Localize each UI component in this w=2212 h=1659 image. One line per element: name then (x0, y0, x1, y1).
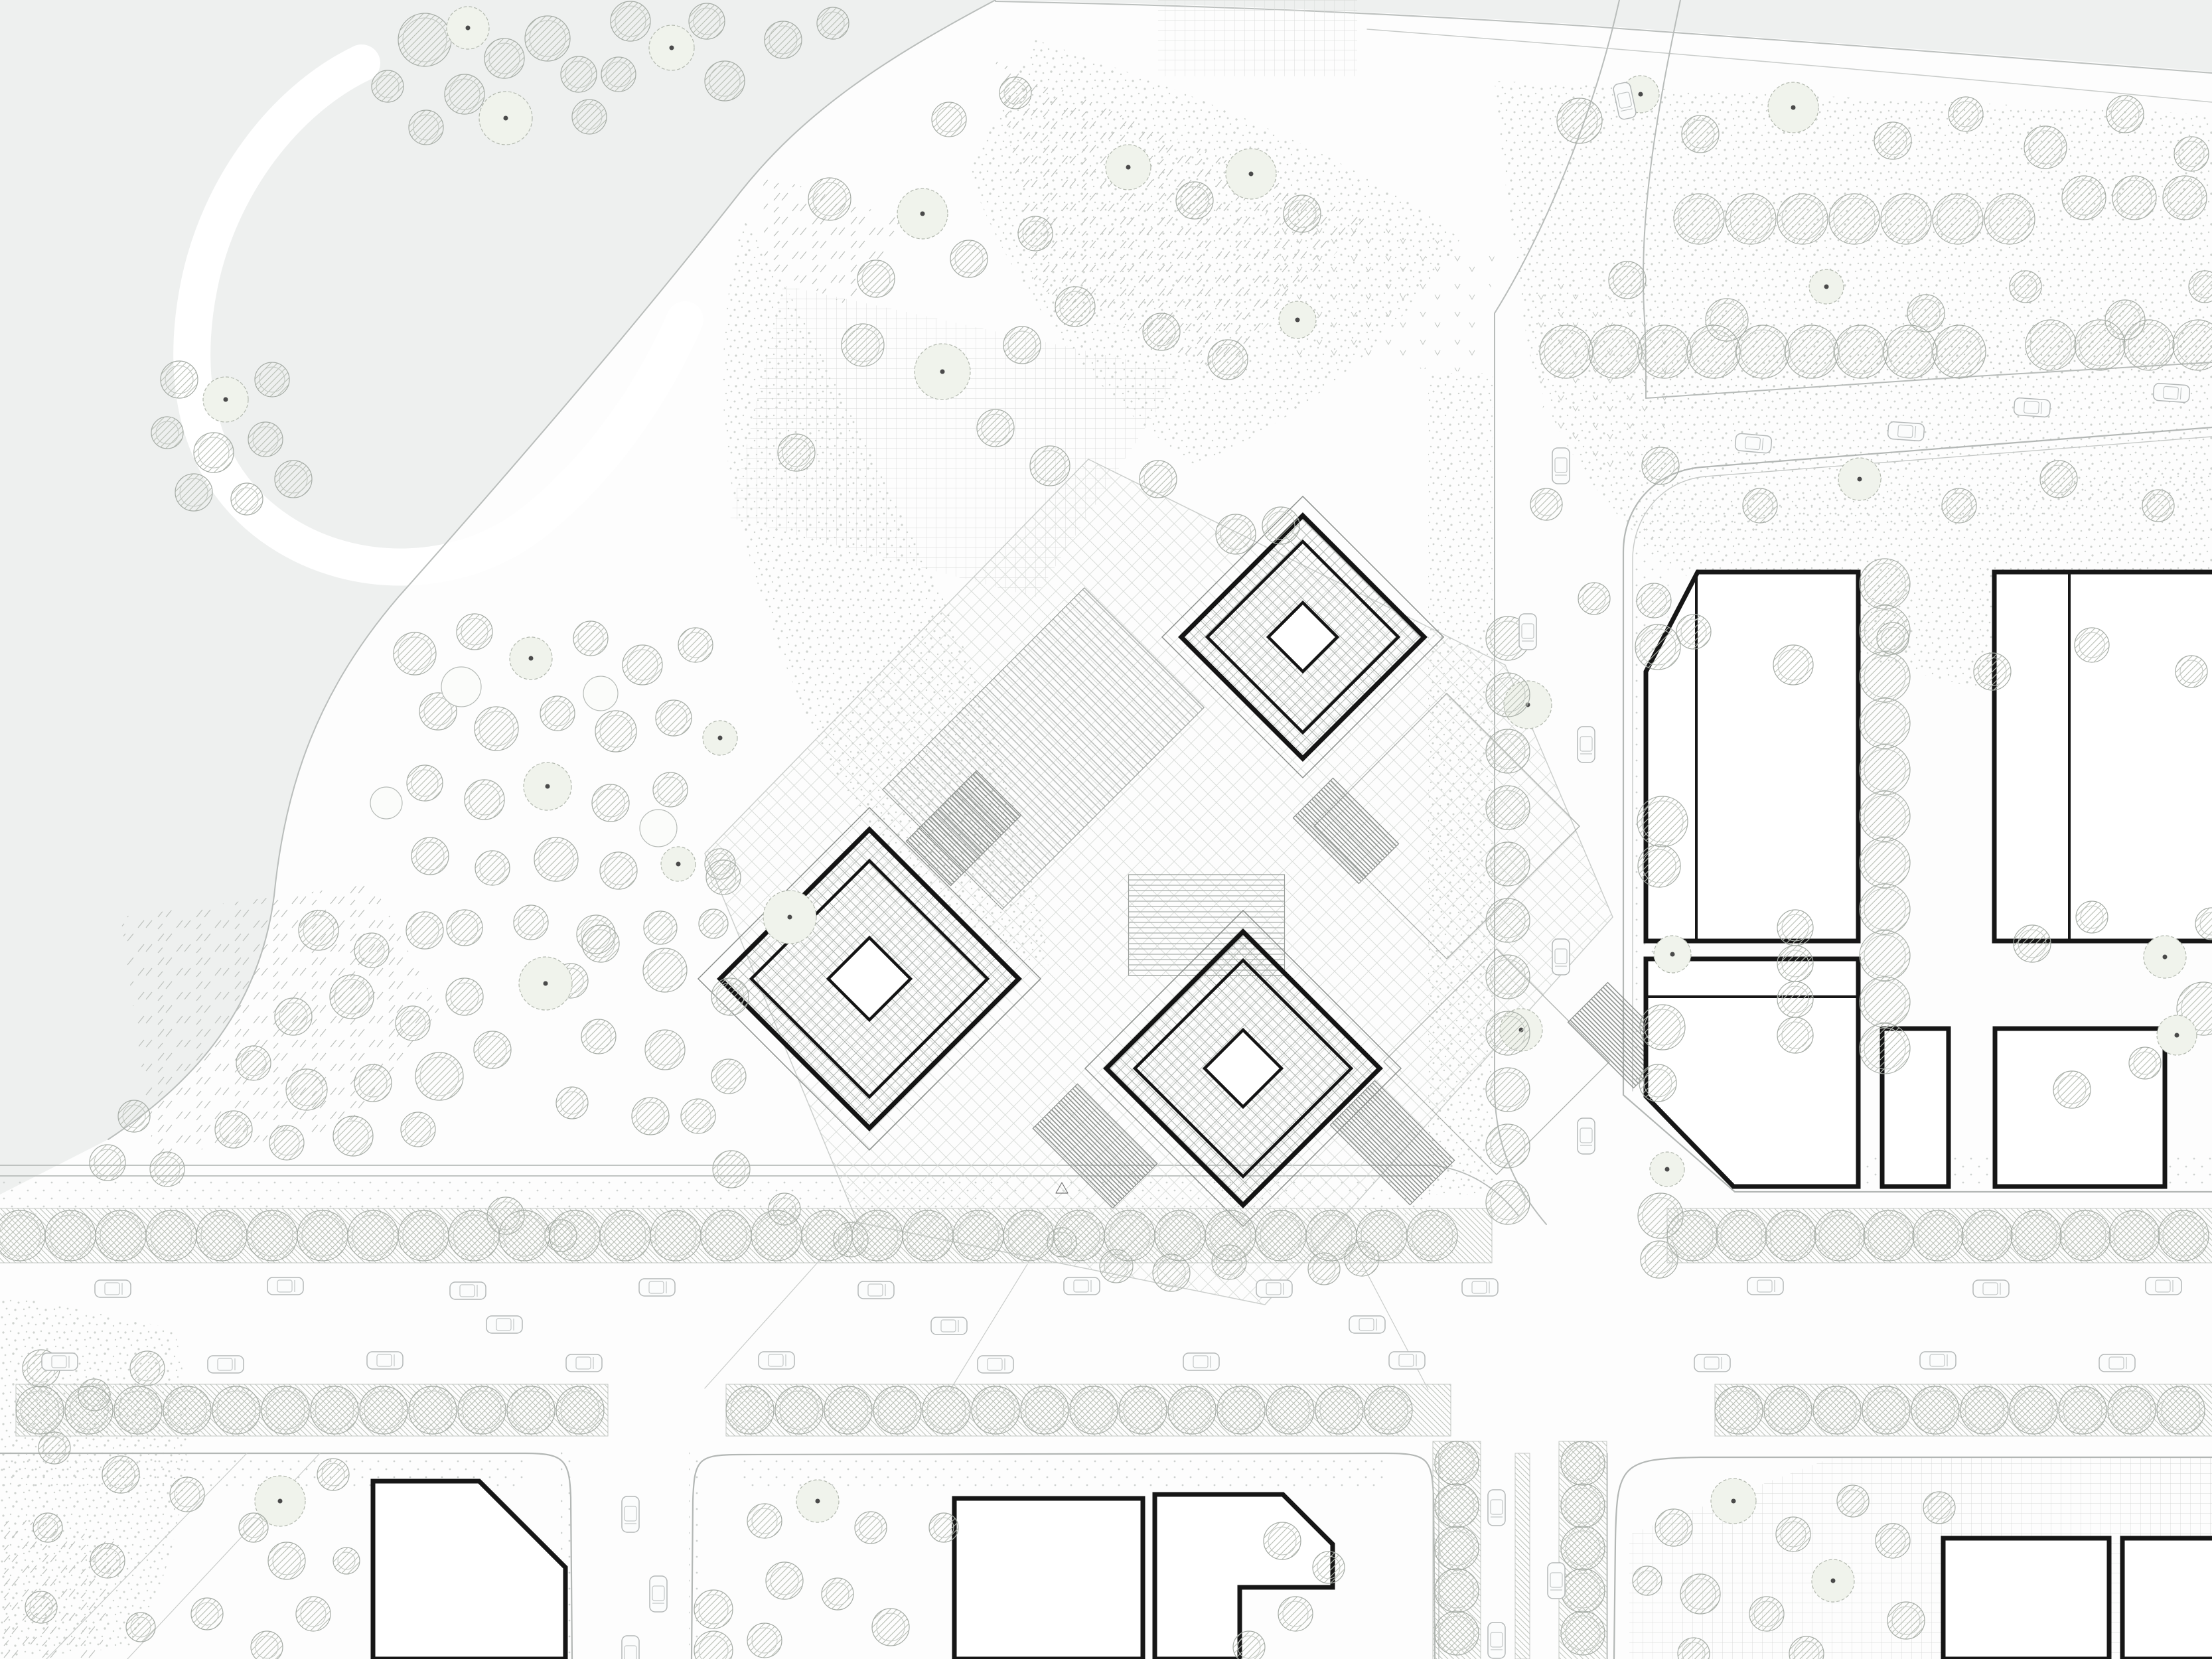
tree (175, 474, 212, 511)
tree (703, 721, 737, 755)
tree (775, 1386, 823, 1434)
tree (2108, 1386, 2156, 1434)
car (1973, 1280, 2009, 1297)
tree (465, 780, 504, 820)
tree (778, 434, 815, 471)
tree (705, 61, 745, 101)
tree (1435, 1441, 1479, 1485)
tree (999, 77, 1031, 109)
tree (1486, 1068, 1530, 1112)
tree (1589, 325, 1642, 378)
tree (449, 1210, 499, 1261)
tree (1860, 837, 1910, 888)
tree (2060, 1210, 2110, 1261)
tree (161, 361, 198, 398)
tree (2157, 1015, 2197, 1055)
tree (1104, 1210, 1155, 1261)
tree (822, 1578, 853, 1610)
tree (1785, 325, 1838, 378)
tree (348, 1210, 398, 1261)
tree (1726, 194, 1776, 244)
tree (1860, 930, 1910, 981)
tree (656, 700, 692, 736)
tree (1876, 1524, 1910, 1558)
tree (2059, 1386, 2106, 1434)
tree (857, 260, 895, 297)
tree (194, 433, 234, 472)
tree (1486, 842, 1530, 886)
tree (706, 860, 741, 895)
tree (611, 1, 650, 41)
street-tree-row (16, 1384, 608, 1436)
car (1548, 1563, 1565, 1599)
tree (595, 711, 636, 752)
tree (1736, 325, 1789, 378)
car (2099, 1354, 2135, 1372)
street-tree-row (2062, 176, 2207, 220)
tree (873, 1386, 921, 1434)
tree (1140, 461, 1177, 498)
building-outline (1943, 1538, 2109, 1659)
car (2146, 1277, 2181, 1295)
tree (1635, 624, 1680, 670)
car (42, 1353, 78, 1370)
tree (1486, 1011, 1530, 1055)
street-tree-row (1540, 325, 1986, 378)
tree (1715, 1386, 1763, 1434)
tree (2026, 320, 2076, 370)
site-plan-page (0, 0, 2212, 1659)
building (1994, 572, 2212, 941)
building (2122, 1538, 2212, 1659)
tree (903, 1210, 953, 1261)
tree (1561, 1484, 1605, 1528)
tree (447, 910, 482, 946)
building-outline (2122, 1538, 2212, 1659)
street-tree-column (1433, 1441, 1481, 1659)
tree (1764, 1386, 1812, 1434)
tree (747, 1504, 782, 1538)
street-tree-column (1559, 1441, 1607, 1659)
tree (763, 891, 816, 944)
tree (1486, 673, 1530, 717)
tree (1765, 1210, 1816, 1261)
tree (1070, 1386, 1118, 1434)
tree (661, 847, 696, 881)
tree (1407, 1210, 1457, 1261)
tree (701, 1210, 751, 1261)
tree (0, 1210, 45, 1261)
street-tree-column (1486, 616, 1530, 1224)
tree (1106, 145, 1151, 190)
tree (1860, 884, 1910, 934)
car (1552, 448, 1570, 484)
tree (1860, 698, 1910, 749)
tree (726, 1386, 774, 1434)
tree (354, 1064, 392, 1102)
tree (45, 1210, 96, 1261)
tree (458, 1386, 506, 1434)
tree (1638, 325, 1691, 378)
tree (2106, 96, 2144, 133)
tree (1262, 507, 1299, 544)
car (1064, 1277, 1100, 1295)
sidewalk-dots (740, 1457, 1387, 1486)
tree (796, 1480, 839, 1522)
tree (2014, 925, 2051, 962)
tree (475, 851, 510, 885)
tree (475, 707, 518, 751)
tree (556, 1386, 604, 1434)
tree (1642, 447, 1679, 484)
tree (409, 1386, 457, 1434)
tree (1923, 1492, 1955, 1524)
tree (1682, 115, 1719, 153)
tree (406, 912, 443, 949)
tree (1561, 1526, 1605, 1570)
tree (90, 1544, 125, 1578)
tree (231, 483, 263, 515)
tree (1003, 1210, 1054, 1261)
tree (150, 1152, 184, 1187)
tree (2142, 490, 2174, 522)
tree (1777, 910, 1813, 946)
car (1488, 1623, 1505, 1658)
car (650, 1576, 667, 1612)
tree (550, 1210, 600, 1261)
site-plan-drawing (0, 0, 2212, 1659)
car (208, 1356, 244, 1373)
tree (118, 1100, 150, 1132)
tree (1176, 182, 1213, 219)
car (622, 1636, 639, 1659)
tree (1640, 1005, 1685, 1050)
tree (151, 417, 183, 449)
car (486, 1316, 522, 1333)
tree (275, 998, 312, 1035)
building-outline (1994, 572, 2212, 941)
building (1943, 1538, 2109, 1659)
tree (1216, 514, 1256, 554)
tree (1021, 1386, 1069, 1434)
tree (1809, 269, 1844, 304)
tree (1687, 325, 1740, 378)
tree (507, 1386, 555, 1434)
tree (601, 57, 636, 92)
tree (474, 1031, 511, 1068)
tree (16, 1386, 64, 1434)
tree (2024, 126, 2067, 169)
tree (1486, 786, 1530, 829)
tree (1217, 1386, 1265, 1434)
building (1646, 959, 1858, 1187)
tree (1637, 796, 1688, 847)
tree (396, 1006, 430, 1041)
tree (398, 1210, 449, 1261)
tree (524, 762, 571, 810)
tree (2075, 320, 2125, 370)
tree (38, 1432, 70, 1464)
tree (713, 1151, 750, 1188)
tree (499, 1210, 550, 1261)
car (1256, 1280, 1292, 1297)
tree (929, 1513, 958, 1542)
tree (286, 1069, 327, 1110)
tree (766, 1562, 803, 1599)
tree (711, 1059, 746, 1094)
tree (1557, 98, 1602, 143)
tree (330, 975, 374, 1019)
car (1349, 1316, 1385, 1333)
tree (1776, 1517, 1810, 1551)
tree (1716, 1210, 1767, 1261)
tree (407, 765, 443, 801)
tree (2010, 1386, 2057, 1434)
tree (1055, 287, 1095, 326)
tree (1883, 325, 1937, 378)
tree (1768, 82, 1818, 133)
tree (1561, 1441, 1605, 1485)
tree (90, 1145, 125, 1181)
tree (808, 178, 851, 220)
tree (600, 1210, 650, 1261)
tree (1650, 1152, 1684, 1187)
tree (802, 1210, 852, 1261)
tree (1435, 1526, 1479, 1570)
tree (333, 1548, 360, 1574)
tree (401, 1112, 435, 1147)
car (566, 1354, 602, 1372)
tree (600, 852, 637, 889)
tree (510, 637, 552, 680)
street-tree-row (0, 1208, 1492, 1263)
tree (2129, 1047, 2161, 1079)
tree (1639, 1064, 1676, 1102)
tree (311, 1386, 358, 1434)
tree (1155, 1210, 1205, 1261)
tree (1637, 583, 1671, 618)
tree (1357, 1210, 1407, 1261)
tree (592, 784, 629, 822)
tree (1933, 194, 1983, 244)
tree (1233, 1631, 1265, 1659)
tree (1949, 97, 1983, 131)
tree (1874, 122, 1911, 159)
tree (247, 1210, 297, 1261)
tree (1942, 488, 1976, 523)
tree (370, 787, 402, 819)
tree (268, 1542, 305, 1579)
car (1519, 614, 1536, 650)
tree (102, 1456, 139, 1493)
tree (1264, 1522, 1301, 1559)
tree (1860, 605, 1910, 656)
car (367, 1352, 403, 1369)
tree (163, 1386, 211, 1434)
tree (699, 909, 728, 938)
tree (1278, 1597, 1313, 1631)
tree (1911, 1386, 1959, 1434)
car (2153, 383, 2190, 403)
building-outline (373, 1481, 565, 1659)
tree (2112, 176, 2156, 220)
tree (645, 1030, 685, 1070)
tree (1743, 488, 1777, 523)
tree (747, 1623, 782, 1658)
tree (689, 3, 725, 39)
tree (65, 1386, 113, 1434)
tree (1711, 1479, 1756, 1524)
tree (248, 422, 283, 457)
tree (852, 1210, 903, 1261)
street-tree-row (726, 1384, 1451, 1436)
tree (1913, 1210, 1963, 1261)
tree (2076, 901, 2108, 933)
tree (191, 1598, 223, 1630)
tree (1486, 1124, 1530, 1168)
car (978, 1356, 1013, 1373)
tree (582, 925, 619, 962)
tree (640, 810, 677, 847)
tree (1030, 446, 1070, 486)
tree (255, 362, 289, 397)
car (1887, 421, 1925, 441)
tree (1638, 845, 1680, 887)
street-tree-row (1667, 1208, 2212, 1263)
tree (2174, 137, 2209, 171)
car (2014, 397, 2051, 417)
building (954, 1498, 1143, 1659)
tree (269, 1125, 304, 1160)
tree (1306, 1210, 1357, 1261)
tree (1654, 936, 1691, 973)
car (1488, 1490, 1505, 1526)
tree (556, 1087, 588, 1119)
tree (1860, 1023, 1910, 1074)
tree (644, 911, 677, 944)
tree (1667, 1210, 1718, 1261)
tree (1864, 1210, 1914, 1261)
tree (1838, 458, 1881, 500)
car (759, 1352, 794, 1369)
tree (1226, 149, 1276, 199)
tree (1984, 194, 2035, 244)
car (267, 1277, 303, 1295)
tree (632, 1098, 669, 1135)
tree (514, 905, 548, 940)
tree (1812, 1559, 1854, 1602)
tree (1168, 1386, 1216, 1434)
tree (1887, 1602, 1925, 1639)
tree (977, 409, 1014, 447)
tree (2157, 1386, 2205, 1434)
tree (519, 957, 572, 1010)
tree (1486, 1181, 1530, 1224)
tree (203, 377, 248, 422)
tree (540, 696, 575, 731)
tree (1860, 791, 1910, 841)
building-outline (954, 1498, 1143, 1659)
tree (1862, 1386, 1910, 1434)
tree (824, 1386, 872, 1434)
tree (1680, 1574, 1720, 1614)
tree (932, 102, 966, 137)
tree (239, 1513, 268, 1542)
car (1462, 1279, 1498, 1296)
tree (765, 21, 802, 58)
tree (2062, 176, 2106, 220)
tree (650, 1210, 701, 1261)
tree (1860, 652, 1910, 702)
tree (561, 56, 597, 92)
tree (1266, 1386, 1314, 1434)
tree (446, 978, 483, 1015)
tree (581, 1019, 616, 1054)
tree (1578, 583, 1610, 614)
tree (1561, 1569, 1605, 1613)
tree (372, 70, 404, 102)
tree (2158, 1210, 2209, 1261)
tree (196, 1210, 247, 1261)
tree (394, 632, 436, 675)
car (1552, 939, 1570, 975)
tree (1777, 1017, 1813, 1053)
tree (299, 910, 338, 950)
tree (950, 240, 988, 277)
tree (1777, 981, 1813, 1017)
street-tree-column (1860, 559, 1910, 1074)
tree (2163, 176, 2207, 220)
tree (317, 1459, 349, 1490)
tree (2144, 936, 2186, 978)
street2-median (1515, 1453, 1530, 1659)
tree (170, 1477, 204, 1512)
building-outline (1646, 959, 1858, 1187)
tree (275, 461, 312, 498)
tree (441, 667, 481, 707)
tree (872, 1609, 909, 1646)
tree (842, 324, 884, 366)
tree (25, 1591, 57, 1623)
tree (653, 772, 688, 807)
tree (1205, 1210, 1256, 1261)
tree (296, 1597, 331, 1631)
car (1578, 727, 1595, 762)
car (931, 1317, 967, 1334)
tree (114, 1386, 162, 1434)
tree (484, 38, 524, 78)
tree (1860, 745, 1910, 795)
tree (212, 1386, 260, 1434)
car (622, 1496, 639, 1532)
car (1920, 1352, 1956, 1369)
tree (681, 1099, 715, 1133)
tree (972, 1386, 1019, 1434)
tree (2124, 320, 2174, 370)
tree (2011, 1210, 2061, 1261)
tree (1960, 1386, 2008, 1434)
tree (1674, 194, 1724, 244)
tree (1860, 977, 1910, 1027)
tree (1435, 1611, 1479, 1655)
tree (236, 1046, 271, 1080)
car (1735, 433, 1772, 454)
tree (2109, 1210, 2160, 1261)
tree (360, 1386, 407, 1434)
tree (1435, 1484, 1479, 1528)
tree (583, 676, 618, 711)
tree (623, 645, 662, 685)
